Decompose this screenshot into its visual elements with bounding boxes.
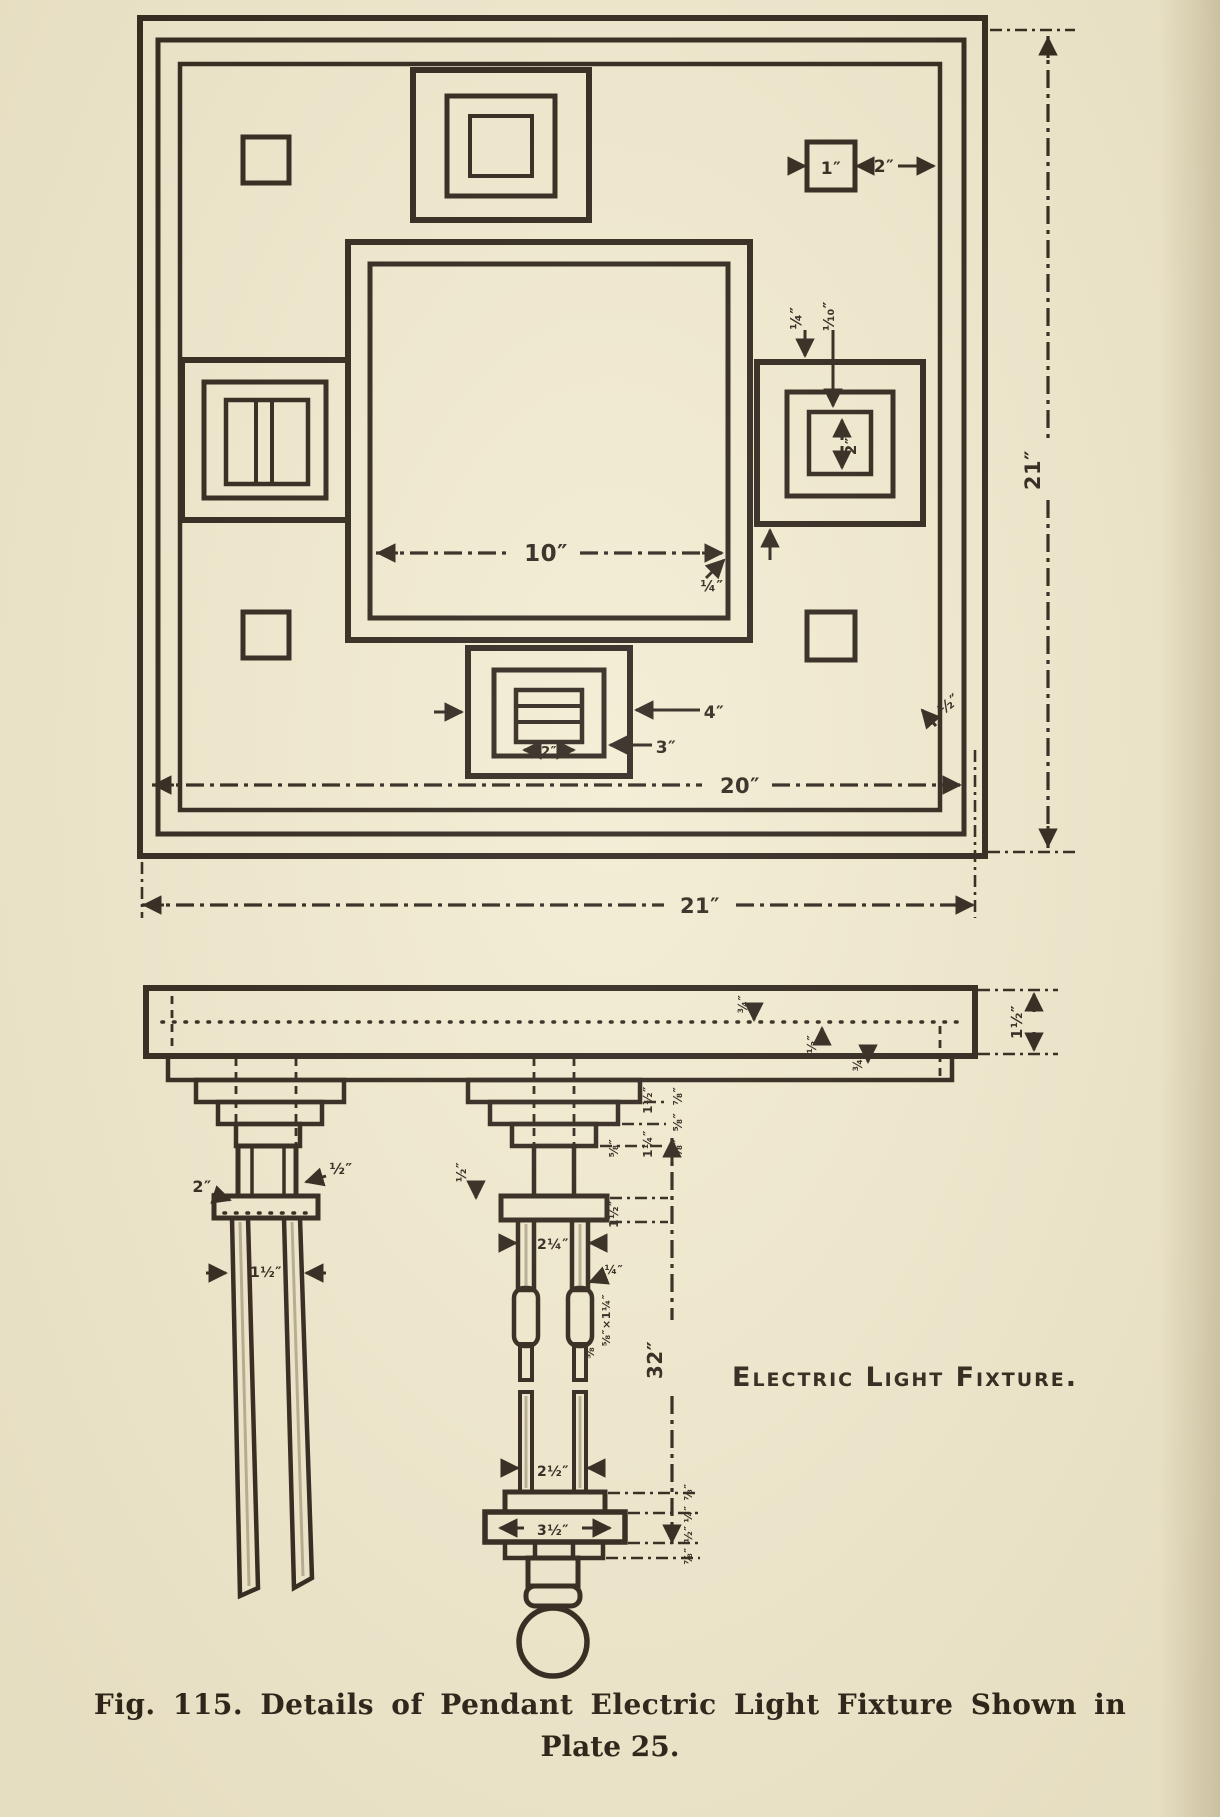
dimension-label: 2½″ — [537, 1464, 569, 1480]
dimension-labels: 1″2″¼″⅒″2″10″¼″4″3″2″20″21″21″½″1½″¾″½″¾… — [192, 157, 1045, 1565]
dimension-label: ¾″ — [736, 994, 750, 1013]
dimension-label: ¾″ — [851, 1052, 865, 1071]
dimension-label: ¼″ — [787, 306, 805, 329]
dimension-label: 1½″ — [607, 1200, 621, 1228]
dimension-label: ½″ — [329, 1160, 352, 1178]
dimension-label: ⅞″ — [682, 1483, 695, 1500]
dimension-label: 3½″ — [537, 1523, 569, 1539]
elev-center-crossbar — [501, 1196, 607, 1220]
dimension-label: ⅝″×1¼″ — [600, 1294, 613, 1346]
dimension-label: 3″ — [656, 738, 676, 758]
plan-left-block — [182, 360, 348, 520]
dimension-label: 10″ — [524, 541, 568, 567]
dimension-label: 1½″ — [1008, 1005, 1026, 1039]
plan-view — [140, 18, 1080, 918]
dimension-label: ¼″ — [605, 1263, 624, 1277]
dimension-label: 32″ — [643, 1341, 667, 1379]
dimension-label: 21″ — [1021, 450, 1045, 490]
dimension-label: ⅞″ — [671, 1086, 685, 1105]
dimension-label: ⅝″ — [584, 1341, 597, 1358]
elev-socket — [528, 1558, 578, 1586]
dimension-label: 1″ — [821, 159, 841, 179]
elev-link-left — [514, 1288, 538, 1346]
dimension-label: ½″ — [682, 1525, 695, 1542]
plan-right-block — [757, 330, 923, 560]
elev-upper-plate — [505, 1492, 605, 1512]
plan-corner-square-bl — [243, 612, 289, 658]
dimension-label: 2″ — [874, 157, 894, 177]
dimension-label: ¼″ — [682, 1505, 695, 1522]
plan-corner-square-br — [807, 612, 855, 660]
elev-link-right — [568, 1288, 592, 1346]
dimension-label: ¼″ — [700, 577, 723, 595]
scanned-page: 1″2″¼″⅒″2″10″¼″4″3″2″20″21″21″½″1½″¾″½″¾… — [0, 0, 1220, 1817]
dimension-label: 1¼″ — [641, 1130, 655, 1158]
dimension-label: ½″ — [805, 1034, 819, 1053]
dimension-label: 1½″ — [641, 1086, 655, 1114]
drawing-note: Electric Light Fixture. — [732, 1362, 1152, 1393]
dimension-label: ⅝″ — [671, 1112, 685, 1131]
technical-drawing: 1″2″¼″⅒″2″10″¼″4″3″2″20″21″21″½″1½″¾″½″¾… — [0, 0, 1220, 1817]
figure-caption-line1: Fig. 115. Details of Pendant Electric Li… — [0, 1688, 1220, 1721]
elev-left-pendant — [196, 1058, 344, 1596]
dimension-label: 21″ — [680, 894, 720, 918]
dimension-label: 20″ — [720, 774, 760, 798]
dimension-label: 4″ — [704, 703, 724, 723]
dimension-label: ½″ — [455, 1162, 470, 1182]
dimension-label: ⅝″ — [671, 1138, 685, 1157]
elev-socket-collar — [526, 1586, 580, 1606]
dimension-label: ⅒″ — [820, 301, 838, 331]
plan-top-block — [413, 70, 589, 220]
dimension-label: 2¼″ — [537, 1237, 569, 1253]
elev-bulb — [519, 1608, 587, 1676]
dimension-label: ⅞″ — [682, 1547, 695, 1564]
elev-left-canopy — [238, 1146, 296, 1196]
figure-caption-line2: Plate 25. — [0, 1730, 1220, 1763]
dimension-label: 1½″ — [250, 1265, 282, 1281]
elev-step-band — [168, 1056, 952, 1080]
dimension-label: 2″ — [192, 1177, 211, 1196]
plan-center-square-outer — [348, 242, 750, 640]
dimension-label: ⅝″ — [607, 1138, 621, 1157]
plan-corner-square-tl — [243, 137, 289, 183]
plan-dim-21-right — [988, 30, 1080, 852]
plan-half-inch-leader — [922, 710, 936, 726]
dimension-label: 2″ — [842, 437, 860, 455]
dimension-label: 2″ — [541, 745, 557, 760]
elev-center-neck — [534, 1146, 574, 1196]
